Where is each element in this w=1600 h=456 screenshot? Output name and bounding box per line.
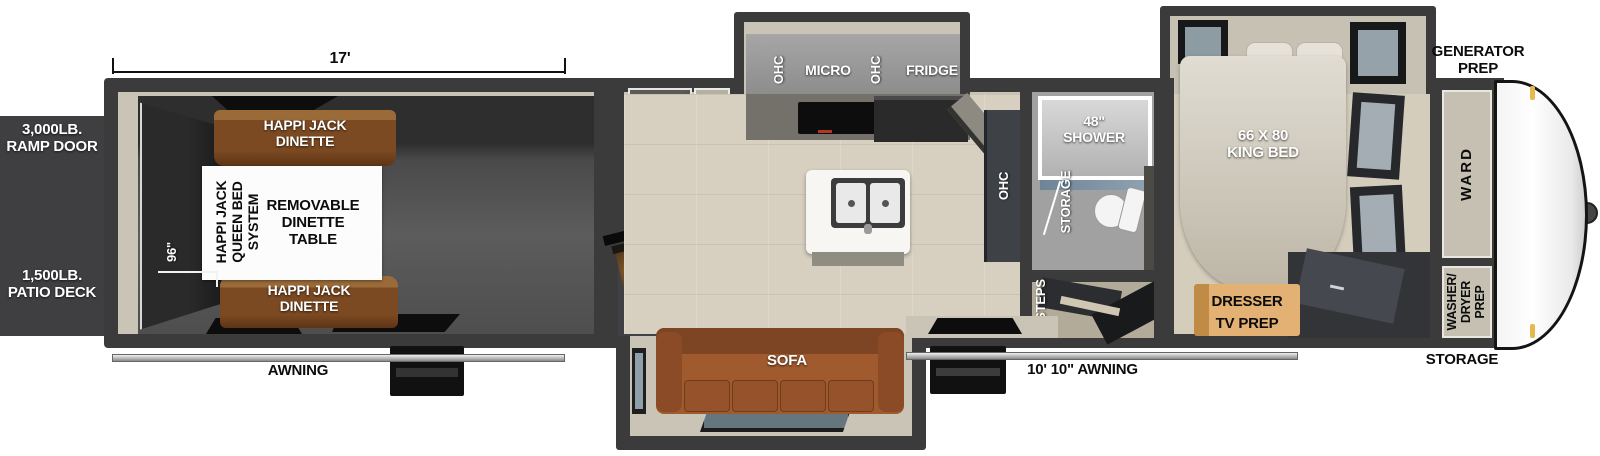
rear-step-tread — [396, 368, 458, 377]
sofa-arm-left — [656, 332, 682, 412]
cooktop — [798, 102, 876, 134]
sofa-cushion — [828, 380, 874, 412]
bedroom-window-upper — [1347, 92, 1405, 179]
floorplan-canvas: 3,000LB. RAMP DOOR 1,500LB. PATIO DECK 1… — [0, 0, 1600, 456]
awning-main-label: 10' 10" AWNING — [990, 362, 1175, 379]
island-base — [812, 252, 904, 266]
dimension-line — [112, 71, 566, 73]
sink-drain-left — [848, 200, 855, 207]
garage-width-label: 96" — [163, 230, 181, 274]
dinette-top-label: HAPPI JACK DINETTE — [214, 118, 396, 149]
width-bracket-tick — [216, 271, 218, 287]
bedroom-slide-window-right — [1350, 22, 1406, 84]
wardrobe-label: WARD — [1457, 119, 1477, 229]
sofa-back — [656, 328, 904, 354]
sofa-cushion — [684, 380, 730, 412]
tv-prep-label: TV PREP — [1194, 316, 1300, 333]
entry-door — [928, 318, 1022, 334]
washer-dryer-label: WASHER/ DRYER PREP — [1444, 271, 1490, 333]
generator-prep-label: GENERATOR PREP — [1412, 44, 1544, 78]
sofa-cushion — [732, 380, 778, 412]
sofa-cushion — [780, 380, 826, 412]
awning-main-bar — [906, 352, 1298, 360]
sofa-slide-window-glass — [635, 353, 643, 409]
dinette-bottom-label: HAPPI JACK DINETTE — [220, 283, 398, 314]
awning-rear-bar — [112, 354, 565, 362]
sofa-label: SOFA — [732, 353, 842, 370]
sink-drain-right — [882, 200, 889, 207]
ohc-mid-label: OHC — [868, 48, 884, 92]
dimension-tick-left — [112, 58, 114, 74]
width-bracket-line — [158, 271, 218, 273]
front-cap — [1494, 80, 1588, 350]
front-storage-label: STORAGE — [1396, 352, 1528, 369]
dimension-tick-right — [564, 58, 566, 74]
marker-light-top — [1530, 86, 1535, 100]
ohc-left-label: OHC — [771, 48, 787, 92]
sink-faucet — [864, 224, 872, 234]
dresser-label: DRESSER — [1194, 294, 1300, 311]
micro-label: MICRO — [794, 63, 862, 79]
fridge-label: FRIDGE — [896, 63, 968, 79]
marker-light-bottom — [1530, 324, 1535, 338]
king-bed-label: 66 X 80 KING BED — [1186, 128, 1340, 162]
awning-rear-label: AWNING — [238, 363, 358, 380]
queen-bed-system-label: HAPPI JACK QUEEN BED SYSTEM — [209, 162, 267, 282]
sofa — [656, 328, 904, 414]
cooktop-trim — [818, 130, 832, 133]
sofa-arm-right — [878, 332, 904, 412]
bath-storage-label: STORAGE — [1058, 166, 1074, 238]
ohc-wall-label: OHC — [996, 164, 1012, 208]
shower-label: 48" SHOWER — [1042, 114, 1146, 145]
ramp-door-label: 3,000LB. RAMP DOOR — [0, 122, 104, 156]
patio-deck-label: 1,500LB. PATIO DECK — [0, 268, 104, 302]
garage-length-label: 17' — [318, 50, 362, 68]
bedroom-wall — [1154, 78, 1174, 348]
